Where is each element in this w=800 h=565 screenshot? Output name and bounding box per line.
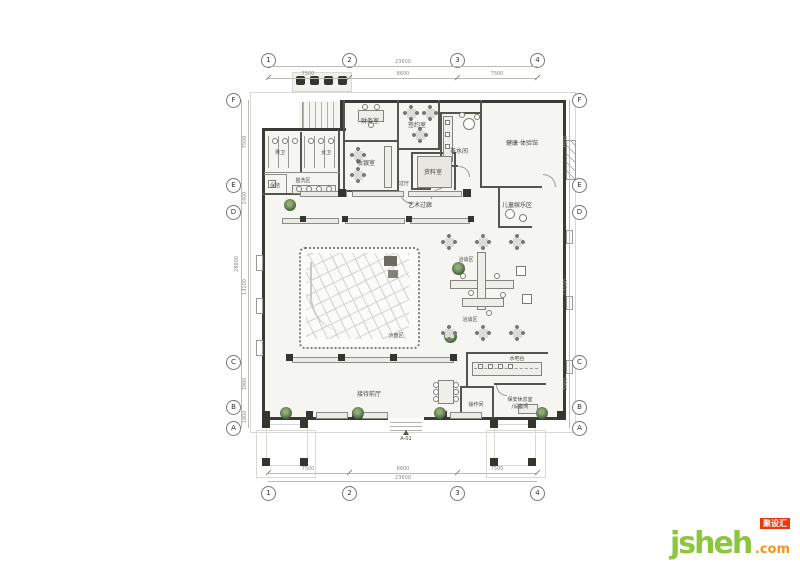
chair-icon <box>468 290 474 296</box>
column <box>406 216 412 222</box>
planter-box <box>316 412 348 419</box>
axis-bubble-right-E: E <box>572 178 587 193</box>
table-cluster <box>474 233 492 251</box>
porch-column <box>300 458 308 466</box>
play-item-icon <box>505 209 515 219</box>
chair-icon <box>453 396 459 402</box>
column <box>463 189 471 197</box>
room-label-health: 健康·体验馆 <box>506 138 538 147</box>
dim-bottom-seg3: 7500 <box>491 466 504 472</box>
partition <box>411 188 431 190</box>
hall-bench <box>292 357 454 363</box>
axis-bubble-left-A: A <box>226 421 241 436</box>
room-label-hallway: 过厅 <box>399 180 409 187</box>
partition <box>492 386 494 418</box>
partition <box>460 386 494 388</box>
dim-left-seg1: 7500 <box>242 136 248 149</box>
toilet-icon <box>272 138 278 144</box>
bar-counter-line <box>474 368 538 370</box>
partition <box>264 172 340 173</box>
porch-column <box>490 458 498 466</box>
axis-bubble-left-E: E <box>226 178 241 193</box>
dim-top-seg3: 7500 <box>491 71 504 77</box>
column <box>300 216 306 222</box>
corridor-bench <box>352 191 404 197</box>
dim-top-seg1: 7500 <box>302 71 315 77</box>
elevation-marker-icon <box>403 430 409 435</box>
room-label-pantry: 茶水间 <box>450 146 468 155</box>
dim-bottom-overall: 23600 <box>395 475 411 481</box>
pilaster <box>262 411 270 419</box>
planter-box <box>450 412 482 419</box>
table-cluster <box>508 324 526 342</box>
chair-icon <box>362 104 368 110</box>
axis-bubble-right-F: F <box>572 93 587 108</box>
toilet-icon <box>292 138 298 144</box>
dim-left-seg4: 3900 <box>242 378 248 391</box>
axis-bubble-left-C: C <box>226 355 241 370</box>
porch-column <box>262 420 270 428</box>
watermark-logo: jsheh 聚设汇 .com <box>670 517 790 557</box>
partition <box>397 100 399 192</box>
cashier-counter <box>384 146 392 188</box>
dimension-line <box>268 473 537 474</box>
axis-bubble-right-C: C <box>572 355 587 370</box>
axis-bubble-right-B: B <box>572 400 587 415</box>
dim-right-seg1: 7500 <box>563 136 569 149</box>
room-label-security-2: /设备间 <box>512 403 529 410</box>
porch-column <box>528 458 536 466</box>
dim-top-overall: 23600 <box>395 59 411 65</box>
plant-icon <box>434 407 446 419</box>
partition <box>498 226 532 228</box>
room-label-archive: 资料室 <box>424 167 442 176</box>
dimension-line <box>268 78 537 79</box>
room-label-finance: 财务室 <box>361 116 379 125</box>
axis-bubble-left-F: F <box>226 93 241 108</box>
area-label-water-bar: 水吧台 <box>509 355 524 362</box>
partition <box>411 152 413 190</box>
appliance-icon <box>445 132 450 137</box>
table-cluster <box>474 324 492 342</box>
axis-bubble-bottom-4: 4 <box>530 486 545 501</box>
table-cluster <box>508 233 526 251</box>
column <box>286 354 293 361</box>
room-label-operation: 操作间 <box>468 401 483 408</box>
dimension-line <box>268 481 537 482</box>
appliance-icon <box>508 364 513 369</box>
column <box>338 354 345 361</box>
dimension-line <box>268 66 537 67</box>
window-bump <box>256 298 263 314</box>
corridor-bench <box>282 218 339 224</box>
side-table-icon <box>516 266 526 276</box>
column <box>390 354 397 361</box>
partition <box>264 174 286 175</box>
chair-icon <box>433 396 439 402</box>
plant-icon <box>280 407 292 419</box>
area-label-sand-table: 沙盘区 <box>388 332 403 339</box>
watermark-tld: .com <box>755 542 790 557</box>
plant-icon <box>284 199 296 211</box>
toilet-icon <box>308 138 314 144</box>
wall-segment <box>262 128 346 131</box>
area-label-kids: 儿童娱乐区 <box>502 200 532 209</box>
play-item-icon <box>519 214 527 222</box>
partition <box>286 174 287 193</box>
chair-icon <box>459 112 465 118</box>
axis-bubble-bottom-3: 3 <box>450 486 465 501</box>
dim-left-seg5: 1800 <box>242 411 248 424</box>
axis-bubble-left-D: D <box>226 205 241 220</box>
room-label-washing-area: 盥洗区 <box>295 177 310 184</box>
dimension-line <box>248 100 249 428</box>
partition <box>454 152 456 190</box>
partition <box>482 186 542 188</box>
area-label-art-corridor: 艺术过廊 <box>408 200 432 209</box>
partition <box>300 132 302 172</box>
partition <box>466 352 548 354</box>
corridor-bench <box>345 218 405 224</box>
plant-icon <box>452 262 465 275</box>
axis-bubble-right-A: A <box>572 421 587 436</box>
table-cluster <box>440 324 458 342</box>
window-bump <box>256 255 263 271</box>
floor-notch <box>263 101 299 129</box>
room-label-womens-wc: 女卫 <box>321 149 331 156</box>
table-cluster <box>440 233 458 251</box>
side-table-icon <box>522 294 532 304</box>
reception-table <box>438 380 454 404</box>
planter-box <box>362 412 388 419</box>
dim-tick <box>535 75 541 81</box>
dim-left-seg3: 13200 <box>242 279 248 295</box>
map-block <box>384 256 397 266</box>
chair-icon <box>433 382 439 388</box>
partition <box>338 130 340 195</box>
chair-icon <box>500 292 506 298</box>
chair-icon <box>474 114 480 120</box>
room-label-security-1: 保安休息室 <box>507 396 532 403</box>
partition <box>343 140 397 142</box>
dimension-line <box>569 100 570 428</box>
appliance-icon <box>445 120 450 125</box>
area-label-reception: 接待前厅 <box>357 389 381 398</box>
wall-segment <box>340 100 566 103</box>
dim-right-seg3: 13200 <box>563 279 569 295</box>
consult-desk <box>462 298 504 307</box>
axis-bubble-bottom-1: 1 <box>261 486 276 501</box>
table-cluster <box>349 166 367 184</box>
window-bump <box>256 340 263 356</box>
column <box>450 354 457 361</box>
appliance-icon <box>488 364 493 369</box>
area-label-talk-upper: 洽谈区 <box>458 256 473 263</box>
porch-column <box>528 420 536 428</box>
corridor-bench <box>410 218 470 224</box>
dim-right-seg4: 3900 <box>563 378 569 391</box>
axis-bubble-bottom-2: 2 <box>342 486 357 501</box>
chair-icon <box>494 273 500 279</box>
exterior-stairs <box>302 102 339 128</box>
partition <box>466 352 468 386</box>
plant-icon <box>536 407 548 419</box>
toilet-icon <box>282 138 288 144</box>
room-label-signing: 签约室 <box>408 120 426 129</box>
dim-left-overall: 28800 <box>234 256 240 272</box>
room-label-cashier: 收银室 <box>357 158 375 167</box>
porch-column <box>262 458 270 466</box>
floor-plan-canvas: 财务室 签约室 茶水间 健康·体验馆 收银室 资料室 过厅 男卫 女卫 盥洗区 … <box>0 0 800 565</box>
chair-icon <box>486 310 492 316</box>
partition <box>480 100 482 188</box>
dim-left-seg2: 2400 <box>242 192 248 205</box>
partition <box>399 148 439 150</box>
chair-icon <box>453 382 459 388</box>
chair-icon <box>453 389 459 395</box>
axis-bubble-right-D: D <box>572 205 587 220</box>
column <box>338 189 346 197</box>
dim-bottom-seg2: 8600 <box>397 466 410 472</box>
corridor-bench <box>408 191 462 197</box>
porch-column <box>490 420 498 428</box>
watermark-badge: 聚设汇 <box>760 518 790 529</box>
room-label-mens-wc: 男卫 <box>275 149 285 156</box>
map-block <box>388 270 398 278</box>
round-table-icon <box>463 118 475 130</box>
toilet-icon <box>318 138 324 144</box>
appliance-icon <box>478 364 483 369</box>
column <box>468 216 474 222</box>
partition <box>343 100 345 192</box>
chair-icon <box>374 104 380 110</box>
column <box>342 216 348 222</box>
dim-top-seg2: 8600 <box>397 71 410 77</box>
watermark-name: jsheh <box>670 526 751 561</box>
partition <box>498 188 500 228</box>
porch-column <box>300 420 308 428</box>
axis-bubble-left-B: B <box>226 400 241 415</box>
pilaster <box>557 411 565 419</box>
elevation-marker-label: A-01 <box>400 436 411 442</box>
pilaster <box>306 411 313 419</box>
appliance-icon <box>498 364 503 369</box>
area-label-talk-lower: 洽谈区 <box>462 316 477 323</box>
dim-bottom-seg1: 7500 <box>302 466 315 472</box>
chair-icon <box>433 389 439 395</box>
room-label-cleaning: 保洁 <box>270 182 280 189</box>
plant-icon <box>352 407 364 419</box>
toilet-icon <box>328 138 334 144</box>
